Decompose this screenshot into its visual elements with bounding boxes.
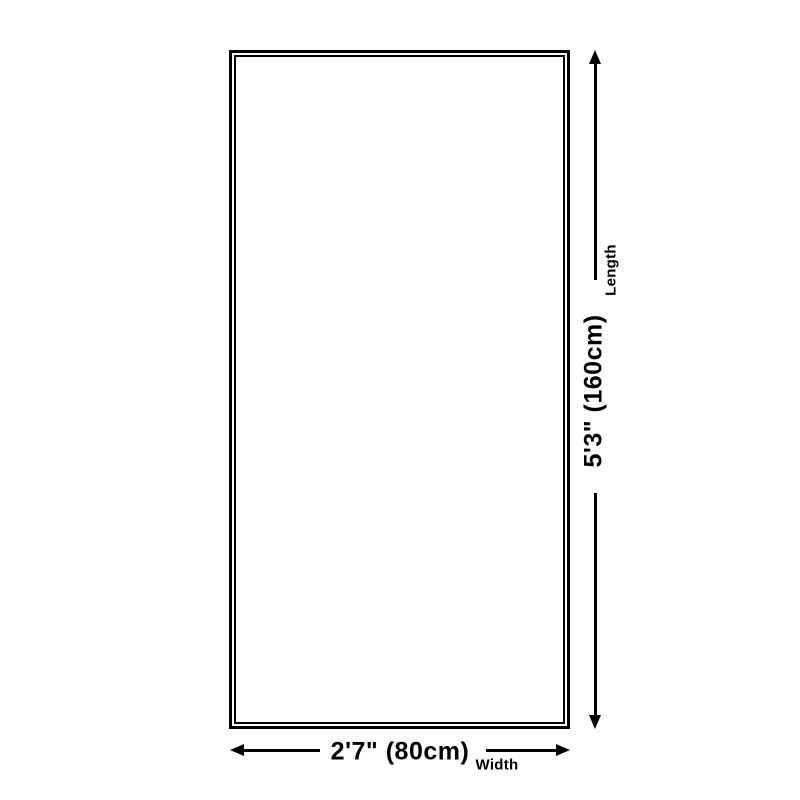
width-dimension-line-right [486,749,556,752]
length-dimension-line-upper [594,62,597,280]
width-dimension-value: 2'7" (80cm) [331,738,470,767]
product-outline-inner-border [234,55,565,724]
arrow-left-icon [230,744,244,756]
dimension-diagram: Length 5'3" (160cm) 2'7" (80cm) Width [0,0,800,800]
arrow-down-icon [589,715,601,729]
length-dimension-value: 5'3" (160cm) [580,314,609,467]
width-dimension-line-left [244,749,320,752]
width-axis-label: Width [475,757,518,774]
product-outline [229,50,570,729]
length-dimension-line-lower [594,493,597,716]
arrow-right-icon [556,744,570,756]
length-axis-label: Length [603,244,620,296]
